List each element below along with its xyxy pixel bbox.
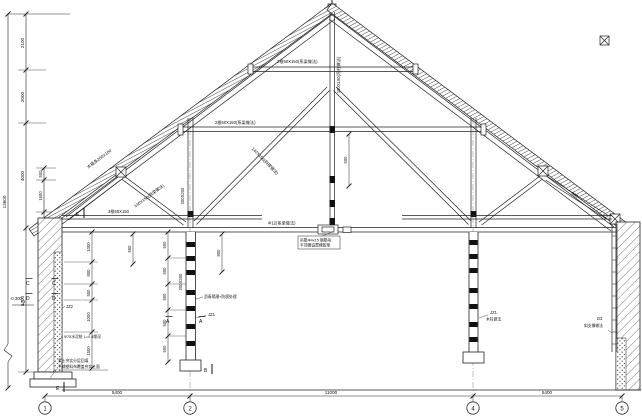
collar-upper-label: 2根50X150(系梁做法) (277, 58, 318, 65)
wall-dim-chain (64, 230, 98, 371)
right-wall: D3 斜支撑做法 (584, 222, 640, 390)
strut-right (479, 176, 540, 222)
section-mark-e-top: E (76, 212, 80, 218)
section-mark-d-right: D (52, 296, 56, 302)
dim-500-4: 500 (162, 319, 167, 327)
d3-note: 斜支撑做法 (584, 323, 603, 328)
dim-600: 600 (343, 156, 348, 164)
dim-w3: 500 (86, 289, 91, 297)
right-column: JZ1 木柱做法 (463, 118, 501, 398)
column-plinth (463, 352, 484, 363)
queen-post-label: 200X200 (180, 187, 185, 204)
diagonal-right (336, 87, 471, 221)
truss-dims (131, 132, 352, 275)
dim-550: 550 (127, 245, 132, 253)
section-mark-b: B (204, 368, 208, 374)
hanger-note: 吊筋Φ4x15 钢筋吊 平顶棚设置橡胶垫 (298, 232, 340, 249)
wood-column-note: 木柱做法 (486, 317, 501, 322)
dim-800: 800 (216, 249, 221, 257)
dim-w2: 800 (86, 269, 91, 277)
footing-step2 (30, 379, 76, 387)
truss-section-drawing: 13600 2100 2000 4000 5700 500 1600 910 木… (0, 0, 642, 417)
section-mark-d-left: D (26, 296, 30, 302)
dim-span3: 5400 (542, 390, 553, 395)
column-plinth (180, 360, 201, 371)
principal-rafters (50, 14, 614, 231)
strut-left (124, 176, 186, 222)
dim-500-1: 500 (162, 241, 167, 249)
section-mark-c-right: C (52, 281, 56, 287)
dim-span1: 5400 (112, 390, 123, 395)
hanger-note-line2: 平顶棚设置橡胶垫 (300, 243, 331, 248)
dim-500-2: 500 (162, 267, 167, 275)
detail-flag-icon (600, 36, 609, 45)
ground-note-line1: 素土夯实分层回填 (58, 358, 89, 363)
tie-rod-label: Φ12(系梁做法) (268, 220, 296, 227)
jz2-label: JZ2 (66, 304, 74, 309)
brace-right (548, 177, 609, 216)
dim-h1: 2100 (20, 37, 25, 48)
section-mark-a-right: A (199, 319, 203, 325)
center-column: A A B JZ1 沥青隔潮+防腐处理 200X200 500 500 500 … (162, 118, 237, 398)
column-note: 沥青隔潮+防腐处理 (204, 294, 237, 299)
pile-column-right (616, 338, 626, 390)
pile-note: Φ75水泥桩 L=0.8埋深 (64, 334, 101, 339)
aux-beam-left-label: 3根50X150 (108, 208, 130, 215)
d3-label: D3 (597, 316, 603, 321)
roof-slope-right (327, 3, 635, 236)
column-size-label: 200X200 (178, 273, 183, 290)
dim-span2: 11000 (325, 390, 338, 395)
dim-500-3: 500 (162, 293, 167, 301)
footing-step1 (34, 372, 72, 379)
column-dim-chain (166, 230, 187, 365)
purlin-label: 木檩条200X100 (85, 147, 113, 170)
dim-s1: 500 (38, 170, 43, 178)
hanger-note-line1: 吊筋Φ4x15 钢筋吊 (300, 238, 332, 243)
pile-column (54, 252, 62, 372)
dim-w1: 1000 (86, 242, 91, 252)
jz1-label: JZ1 (208, 312, 216, 317)
drawing-sheet: 13600 2100 2000 4000 5700 500 1600 910 木… (0, 0, 642, 417)
collar-mid-label: 2根50X150(系梁做法) (215, 119, 256, 126)
king-post-label: 150X150(吊柱做法) (335, 56, 342, 93)
dim-h3: 4000 (20, 170, 25, 181)
strut-label: 140X150(斜撑做法) (250, 145, 281, 176)
dim-total-height: 13600 (2, 195, 7, 208)
dim-h2: 2000 (20, 91, 25, 102)
level-value: -0.300 (10, 296, 23, 301)
section-mark-c-left: C (26, 281, 30, 287)
dim-w5: 1500 (86, 346, 91, 356)
column-bands (470, 240, 478, 342)
dim-500-5: 500 (162, 345, 167, 353)
ground-and-axes: 5400 11000 5400 1 2 4 5 (39, 390, 641, 414)
turnbuckle-icon (318, 225, 351, 234)
dim-s2: 1600 (38, 191, 43, 201)
dim-w4: 1000 (86, 312, 91, 322)
jz1-right-label: JZ1 (490, 310, 498, 315)
